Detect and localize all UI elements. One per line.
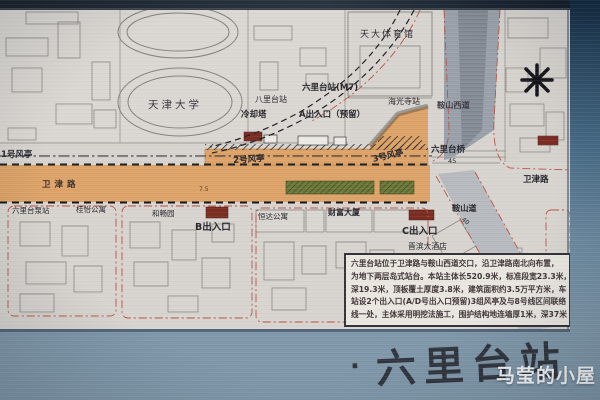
label-liulitai-station: 六里台站(M7) — [302, 84, 358, 93]
label-cooling-tower: 冷却塔 — [241, 111, 267, 120]
label-anshan-west-road: 鞍山西道 — [437, 101, 470, 109]
label-entrance-c: C出入口 — [402, 227, 437, 237]
label-pump-station: 六里台泵站 — [12, 207, 50, 215]
label-entrance-b: B出入口 — [195, 223, 231, 233]
label-hengda-apartment: 恒达公寓 — [258, 213, 288, 221]
anshan-west-road-shape — [444, 10, 500, 160]
compass-star-icon — [522, 65, 552, 95]
title-bullet: · — [349, 352, 360, 382]
label-liulitai-bridge: 六里台桥 — [431, 146, 465, 155]
label-bridge-dimension: 45 — [448, 158, 456, 165]
label-tianjin-university: 天津大学 — [148, 100, 202, 111]
campus-area — [0, 10, 350, 144]
label-tju-gym: 天大体育馆 — [360, 31, 415, 40]
label-caifu-building: 财富大厦 — [328, 209, 360, 217]
label-balitai-station: 八里台站 — [255, 96, 287, 104]
label-anshan-road: 鞍山道 — [452, 204, 477, 212]
info-line: 深19.3米，顶板覆土厚度3.8米，建筑面积约3.5万平方米，车 — [351, 284, 564, 297]
station-plan-map: 天大体育馆 天津大学 八里台站 六里台站(M7) 海光寺站 冷却塔 A出入口（预… — [0, 8, 572, 332]
info-line: 站设2个出入口(A/D号出入口预留)3组风亭及与8号线区间联络 — [351, 296, 564, 309]
label-dimension-75: 7.5 — [199, 187, 209, 193]
info-line: 为地下两层岛式站台。本站主体长520.9米，标准段宽23.3米， — [351, 271, 564, 284]
label-haiguangsi-station: 海光寺站 — [388, 98, 420, 106]
label-entrance-a: A出入口（预留） — [299, 111, 365, 120]
photo-of-station-map-board: 天大体育馆 天津大学 八里台站 六里台站(M7) 海光寺站 冷却塔 A出入口（预… — [0, 0, 600, 400]
station-info-box: 六里台站位于卫津路与鞍山西道交口，沿卫津路南北向布置， 为地下两层岛式站台。本站… — [344, 253, 571, 327]
label-jinbin-hotel: 晋滨大酒店 — [408, 243, 447, 251]
entrance-c-shape — [409, 210, 434, 220]
label-hechang-garden: 和畅园 — [152, 210, 175, 218]
entrance-b-shape — [206, 207, 228, 218]
label-weijin-road-west: 卫津路 — [42, 181, 80, 190]
label-weijin-road-east: 卫津路 — [523, 176, 549, 185]
info-line: 六里台站位于卫津路与鞍山西道交口，沿卫津路南北向布置， — [351, 258, 564, 271]
label-guiyi-apartment: 桂怡公寓 — [76, 206, 106, 214]
watermark-text: 马莹的小屋 — [496, 361, 596, 388]
info-line: 线一处，主体采用明挖法施工，围护结构地连墙厚1米，深37米 — [351, 309, 564, 322]
label-vent-1: 1号风亭 — [1, 151, 32, 160]
label-vent-2: 2号风亭 — [233, 155, 265, 166]
board-right-edge — [570, 0, 600, 400]
green-median-strips — [286, 181, 414, 194]
board-top-edge — [0, 0, 600, 8]
